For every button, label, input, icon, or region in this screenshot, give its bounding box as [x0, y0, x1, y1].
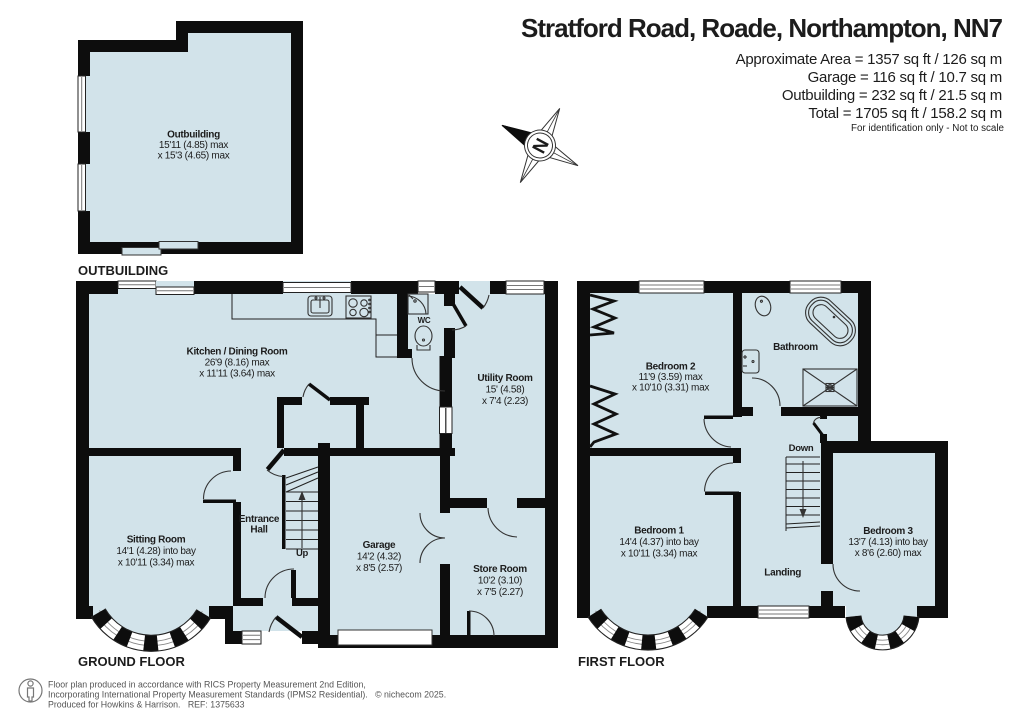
- svg-text:Outbuilding = 232 sq ft / 21.5: Outbuilding = 232 sq ft / 21.5 sq m: [782, 87, 1002, 104]
- svg-text:Entrance: Entrance: [239, 514, 280, 525]
- svg-text:10'2 (3.10): 10'2 (3.10): [478, 576, 522, 587]
- svg-text:13'7 (4.13) into bay: 13'7 (4.13) into bay: [848, 537, 928, 548]
- svg-text:Outbuilding: Outbuilding: [167, 130, 220, 141]
- svg-text:Bedroom 3: Bedroom 3: [863, 526, 913, 537]
- svg-text:Floor plan produced in accorda: Floor plan produced in accordance with R…: [48, 680, 366, 690]
- svg-text:14'1 (4.28) into bay: 14'1 (4.28) into bay: [116, 546, 196, 557]
- svg-text:Garage: Garage: [363, 540, 396, 551]
- svg-text:Store Room: Store Room: [473, 564, 527, 575]
- svg-text:Approximate Area = 1357 sq ft: Approximate Area = 1357 sq ft / 126 sq m: [736, 51, 1002, 68]
- svg-text:Hall: Hall: [250, 525, 268, 536]
- svg-text:x 11'11 (3.64) max: x 11'11 (3.64) max: [199, 369, 275, 380]
- svg-text:For identification only - Not: For identification only - Not to scale: [851, 123, 1005, 134]
- svg-text:Utility Room: Utility Room: [477, 373, 533, 384]
- svg-text:Bedroom 2: Bedroom 2: [646, 362, 696, 373]
- svg-text:14'2 (4.32): 14'2 (4.32): [357, 552, 401, 563]
- svg-text:GROUND FLOOR: GROUND FLOOR: [78, 654, 185, 669]
- svg-text:Incorporating International Pr: Incorporating International Property Mea…: [48, 690, 446, 700]
- svg-text:Sitting Room: Sitting Room: [127, 535, 186, 546]
- svg-text:x 10'11 (3.34) max: x 10'11 (3.34) max: [621, 549, 698, 560]
- svg-text:15' (4.58): 15' (4.58): [486, 385, 525, 396]
- svg-text:11'9 (3.59) max: 11'9 (3.59) max: [639, 372, 703, 383]
- svg-text:Down: Down: [789, 443, 814, 454]
- svg-text:Produced for Howkins & Harriso: Produced for Howkins & Harrison. REF: 13…: [48, 700, 245, 710]
- svg-text:14'4 (4.37) into bay: 14'4 (4.37) into bay: [619, 537, 699, 548]
- svg-text:WC: WC: [418, 316, 431, 325]
- svg-text:OUTBUILDING: OUTBUILDING: [78, 263, 168, 278]
- svg-text:x 7'4 (2.23): x 7'4 (2.23): [482, 396, 528, 407]
- svg-text:Stratford Road, Roade, Northam: Stratford Road, Roade, Northampton, NN7: [521, 13, 1003, 43]
- svg-text:x 8'6 (2.60) max: x 8'6 (2.60) max: [855, 548, 922, 559]
- svg-text:Up: Up: [296, 548, 309, 559]
- svg-text:Total = 1705 sq ft / 158.2 sq: Total = 1705 sq ft / 158.2 sq m: [808, 105, 1002, 122]
- svg-text:x 10'10 (3.31) max: x 10'10 (3.31) max: [632, 383, 709, 394]
- svg-text:Garage = 116 sq ft / 10.7 sq m: Garage = 116 sq ft / 10.7 sq m: [808, 69, 1002, 86]
- svg-text:FIRST FLOOR: FIRST FLOOR: [578, 654, 665, 669]
- svg-text:x 7'5 (2.27): x 7'5 (2.27): [477, 587, 523, 598]
- svg-text:15'11 (4.85) max: 15'11 (4.85) max: [159, 140, 228, 151]
- svg-text:Kitchen / Dining Room: Kitchen / Dining Room: [187, 347, 288, 358]
- svg-text:x 10'11 (3.34) max: x 10'11 (3.34) max: [118, 558, 195, 569]
- svg-text:Bedroom 1: Bedroom 1: [634, 526, 684, 537]
- svg-text:26'9 (8.16) max: 26'9 (8.16) max: [205, 358, 270, 369]
- svg-text:x 15'3 (4.65) max: x 15'3 (4.65) max: [158, 151, 230, 162]
- svg-text:Bathroom: Bathroom: [773, 342, 818, 353]
- svg-text:x 8'5 (2.57): x 8'5 (2.57): [356, 563, 402, 574]
- svg-text:Landing: Landing: [764, 568, 801, 579]
